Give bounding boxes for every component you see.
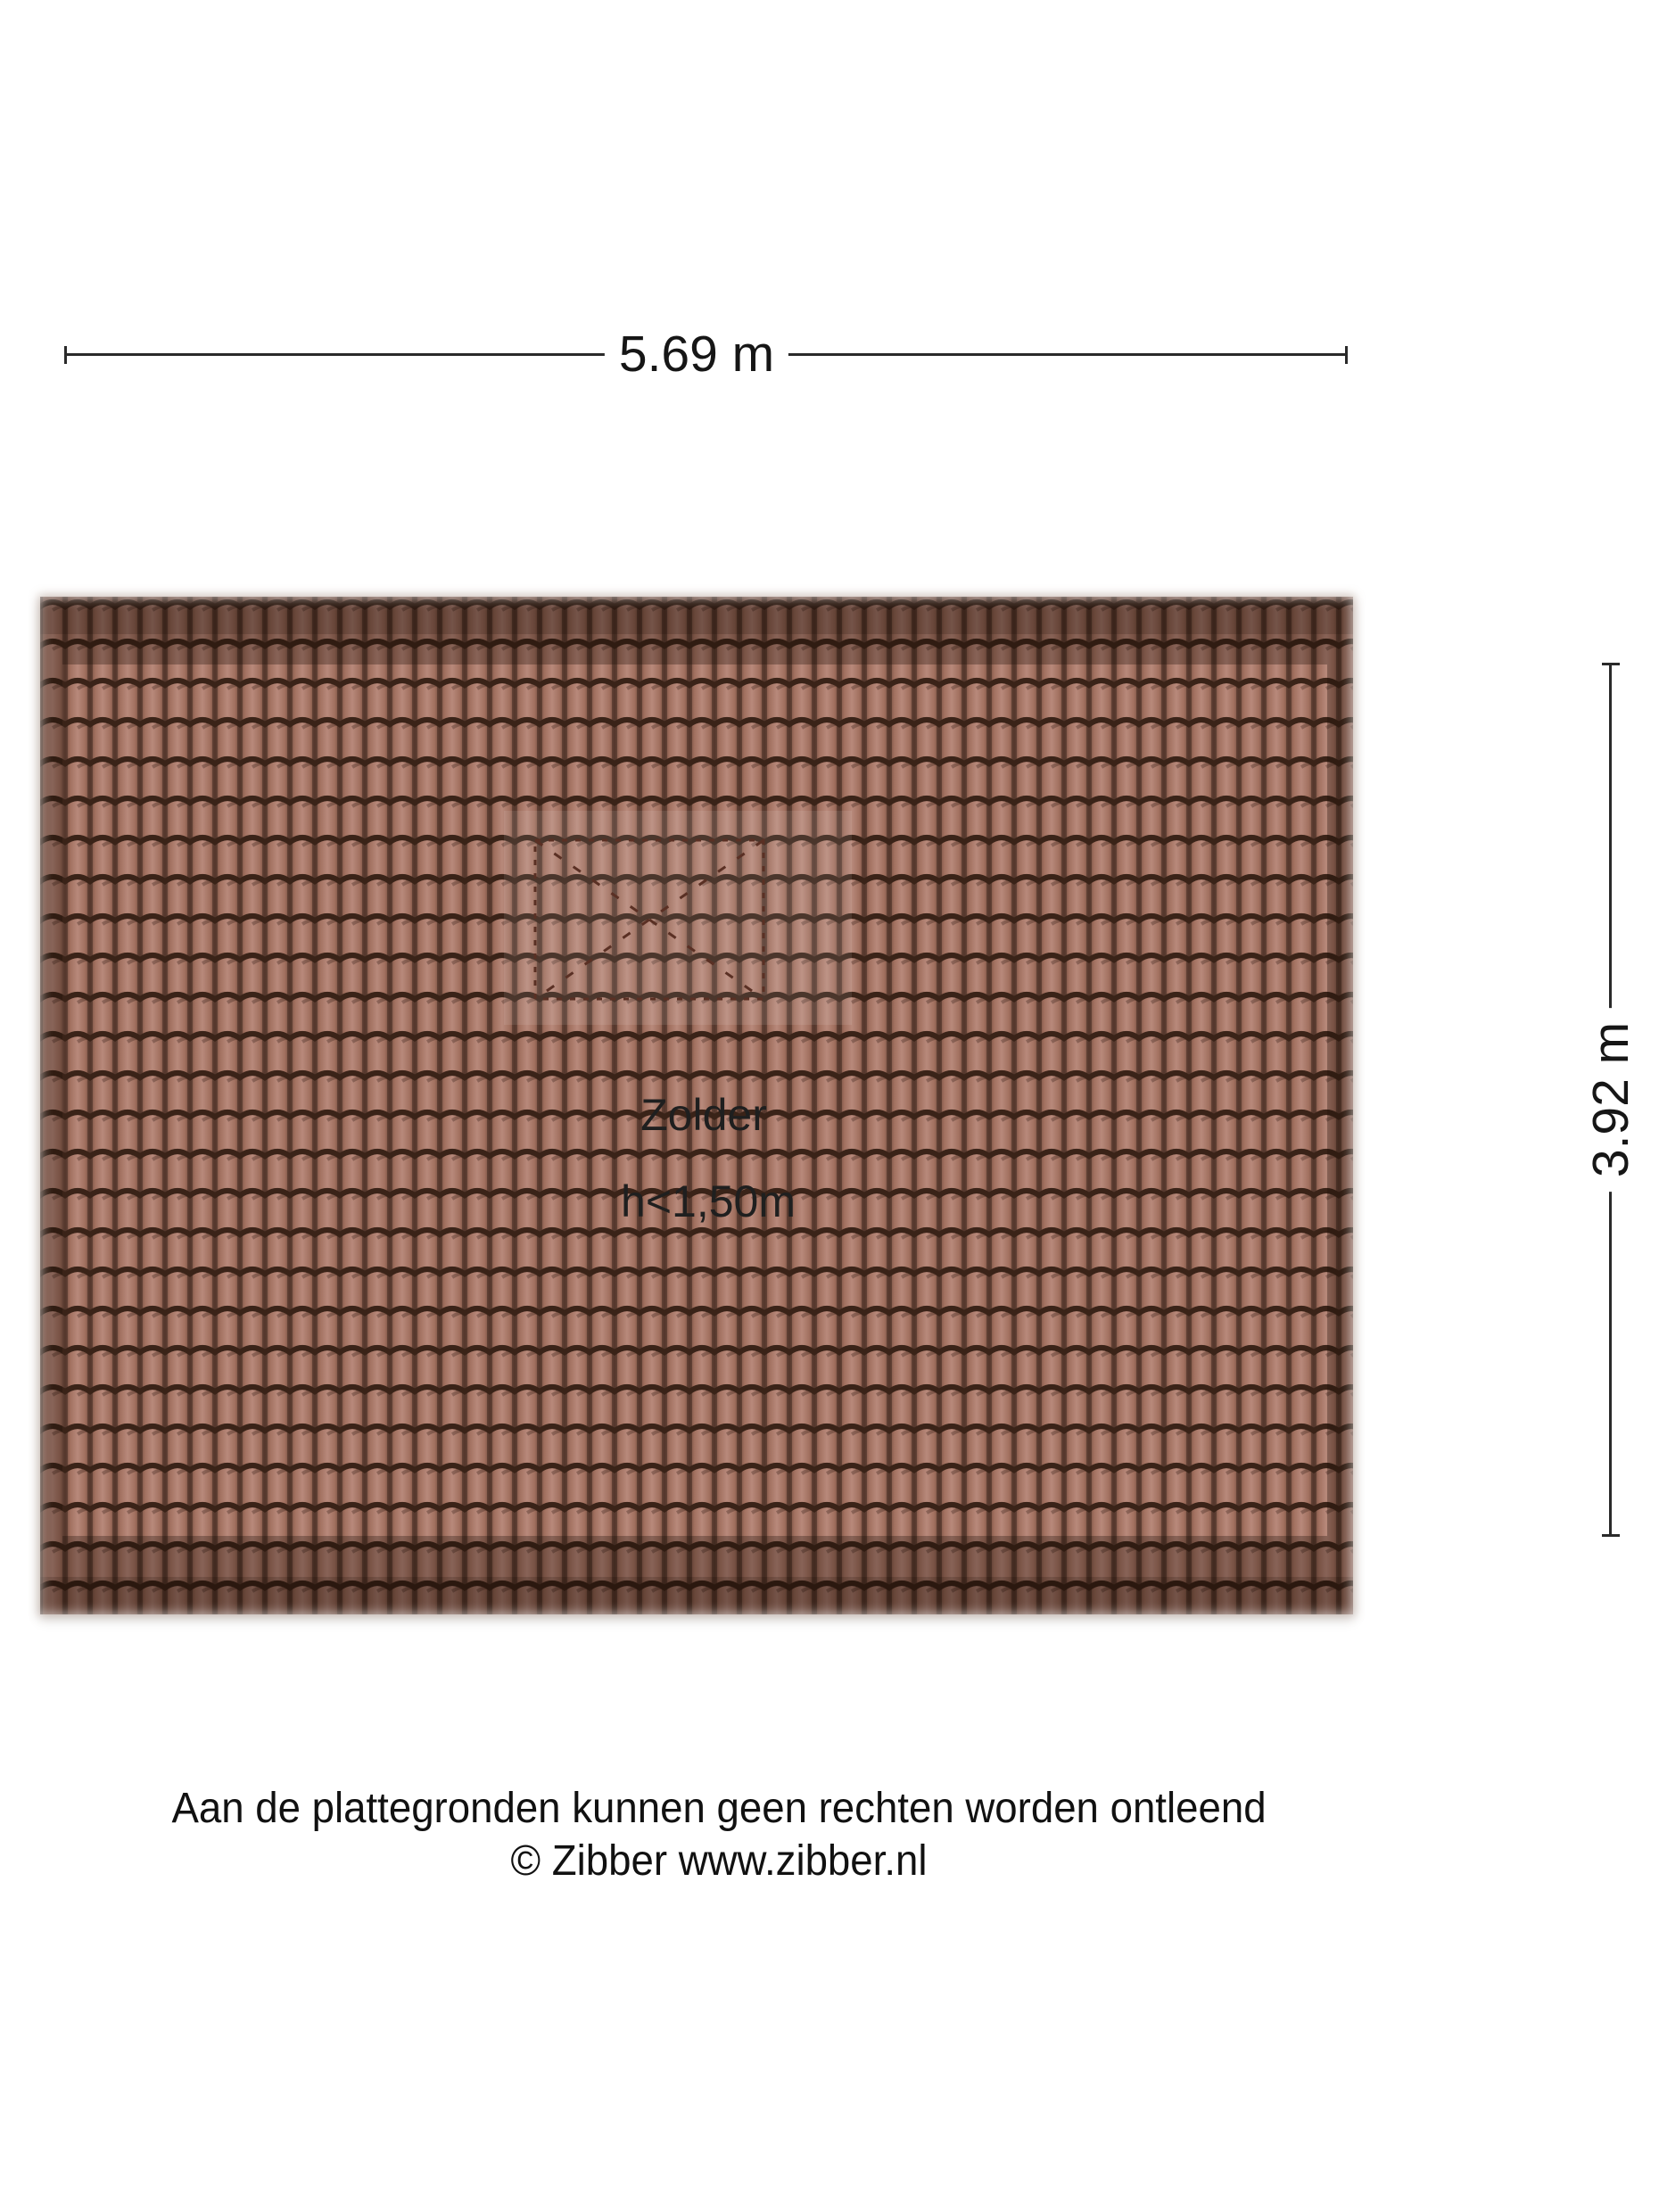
footer: Aan de plattegronden kunnen geen rechten… [36,1782,1401,1887]
dimension-width-label: 5.69 m [605,326,788,383]
skylight-light-patch [504,811,852,1025]
room-height-note: h<1,50m [621,1178,796,1225]
eaves-left [40,664,62,1536]
footer-disclaimer: Aan de plattegronden kunnen geen rechten… [36,1782,1401,1835]
room-name-label: Zolder [640,1092,767,1138]
footer-copyright: © Zibber www.zibber.nl [36,1835,1401,1887]
ridge-shading-top [40,597,1353,634]
dimension-tick-bottom [1602,1534,1620,1537]
dimension-tick-left [64,346,67,364]
dimension-tick-right [1345,346,1348,364]
dimension-tick-top [1602,663,1620,665]
eaves-right [1327,664,1353,1536]
dimension-depth-label: 3.92 m [1582,1008,1639,1192]
ridge-shading-bottom [40,1577,1353,1614]
